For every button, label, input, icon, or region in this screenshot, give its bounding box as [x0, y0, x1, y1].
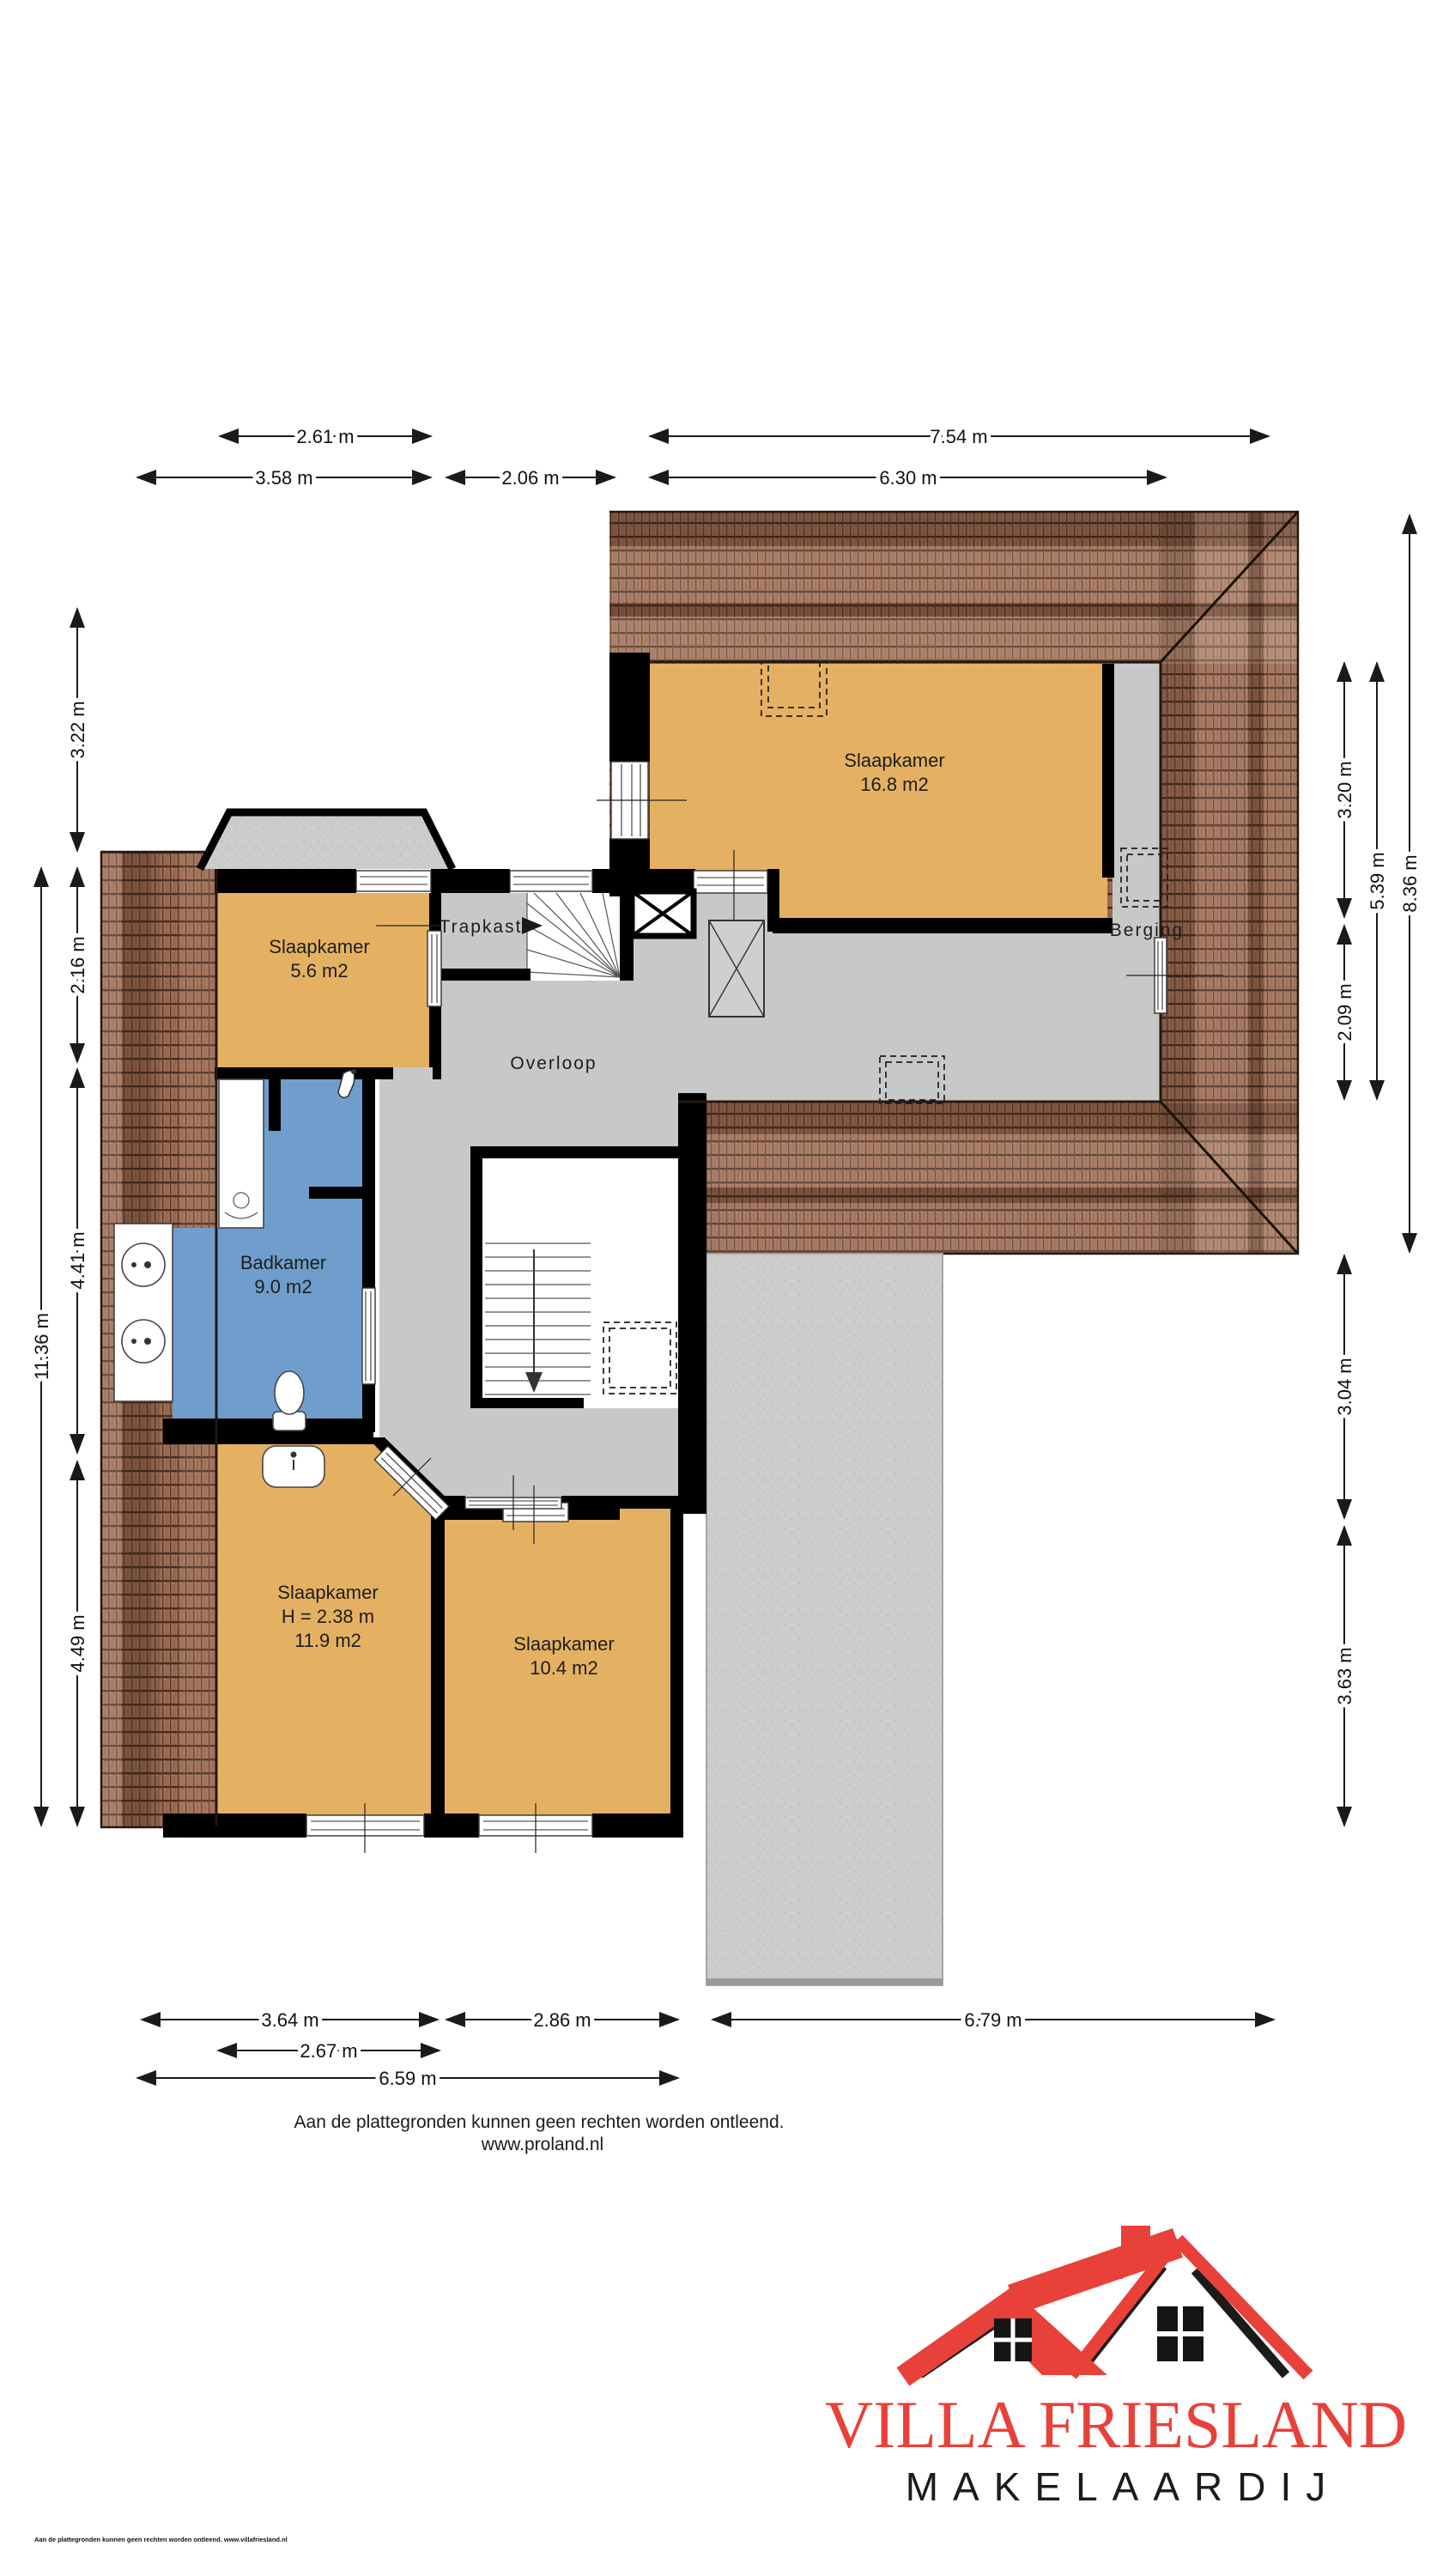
bathtub — [263, 1446, 324, 1487]
dim-3-22: 3.22 m — [67, 701, 88, 758]
dim-2-09: 2.09 m — [1334, 983, 1355, 1041]
window-badkamer-right — [362, 1288, 375, 1384]
fine-print: Aan de plattegronden kunnen geen rechten… — [34, 2536, 288, 2543]
logo-window-left — [994, 2318, 1032, 2361]
dimensions-right: 3.20 m 2.09 m 5.39 m 8.36 m 3.04 m 3.63 … — [1334, 515, 1421, 1826]
dimensions-top: 2.61 m 7.54 m 3.58 m 2.06 m 6.30 m — [137, 426, 1269, 489]
logo-house-icon — [903, 2226, 1308, 2377]
dim-2-86: 2.86 m — [533, 2009, 591, 2031]
dim-11-36: 11.36 m — [31, 1313, 52, 1380]
dim-3-20: 3.20 m — [1334, 761, 1355, 818]
dim-6-30: 6.30 m — [879, 467, 937, 489]
shaft-box-small — [632, 891, 694, 936]
window-5-6-right — [427, 931, 441, 1006]
dimensions-bottom: 3.64 m 2.86 m 6.79 m 2.67 m 6.59 m — [137, 2009, 1274, 2089]
trapkast-floor — [441, 893, 527, 981]
label-berging: Berging — [1110, 920, 1184, 940]
logo-villa-friesland: VILLA FRIESLAND MAKELAARDIJ — [825, 2226, 1407, 2509]
dim-4-49: 4.49 m — [67, 1614, 88, 1672]
sink-counter — [114, 1224, 173, 1401]
dim-3-64: 3.64 m — [261, 2009, 318, 2031]
dim-7-54: 7.54 m — [930, 426, 987, 447]
window-16-8-bottom — [694, 871, 767, 893]
dim-2-67: 2.67 m — [300, 2040, 357, 2062]
shaft-box-tall — [709, 920, 764, 1017]
window-top-wall — [510, 871, 592, 891]
footer-website: www.proland.nl — [481, 2135, 603, 2154]
dormer — [200, 812, 452, 869]
dim-4-41: 4.41 m — [67, 1231, 88, 1289]
window-5-6-top — [356, 871, 431, 891]
dim-2-06: 2.06 m — [501, 467, 559, 489]
dim-2-16: 2.16 m — [67, 936, 88, 993]
dim-8-36: 8.36 m — [1399, 854, 1421, 912]
dimensions-left: 3.22 m 2.16 m 4.41 m 4.49 m 11.36 m — [31, 609, 88, 1826]
dim-3-04: 3.04 m — [1334, 1358, 1355, 1415]
stairwell-floor — [470, 1158, 678, 1408]
logo-subtitle: MAKELAARDIJ — [906, 2464, 1341, 2509]
floorplan-canvas: Slaapkamer16.8 m2 Berging Trapkast Slaap… — [0, 0, 1449, 2576]
footer-disclaimer: Aan de plattegronden kunnen geen rechten… — [294, 2112, 785, 2132]
dim-6-59: 6.59 m — [379, 2068, 436, 2089]
logo-title: VILLA FRIESLAND — [825, 2387, 1407, 2462]
washbasin-cabinet — [219, 1079, 264, 1228]
label-overloop: Overloop — [510, 1054, 597, 1073]
dim-6-79: 6.79 m — [964, 2009, 1022, 2031]
concrete-extension — [706, 1254, 943, 1985]
dim-2-61: 2.61 m — [296, 426, 354, 447]
logo-window-right — [1157, 2306, 1203, 2361]
label-trapkast: Trapkast — [440, 917, 523, 937]
dim-3-58: 3.58 m — [255, 467, 312, 489]
toilet — [273, 1371, 306, 1431]
dim-5-39: 5.39 m — [1367, 852, 1388, 909]
berging-floor — [1113, 664, 1161, 932]
dim-3-63: 3.63 m — [1334, 1647, 1355, 1704]
